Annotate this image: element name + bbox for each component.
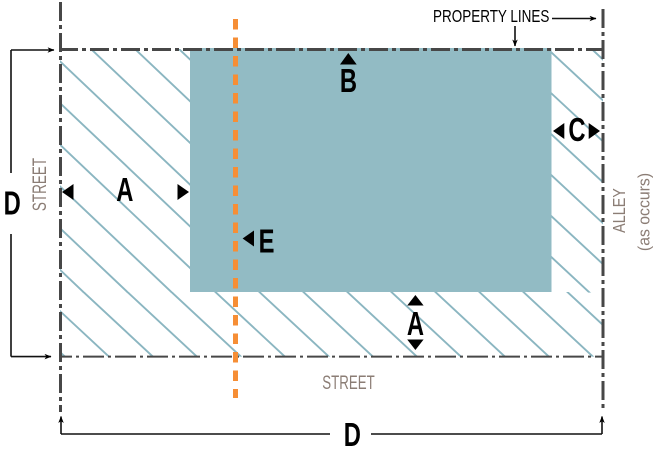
- svg-text:D: D: [4, 186, 21, 223]
- svg-text:E: E: [259, 224, 275, 261]
- svg-text:STREET: STREET: [30, 158, 51, 211]
- svg-text:A: A: [407, 306, 424, 343]
- svg-text:B: B: [340, 63, 357, 100]
- svg-text:C: C: [568, 112, 585, 149]
- svg-text:ALLEY: ALLEY: [611, 188, 630, 233]
- svg-text:A: A: [116, 172, 133, 209]
- svg-text:PROPERTY LINES: PROPERTY LINES: [433, 7, 549, 26]
- svg-text:STREET: STREET: [322, 373, 374, 394]
- svg-text:(as occurs): (as occurs): [635, 173, 654, 251]
- svg-text:D: D: [344, 417, 361, 450]
